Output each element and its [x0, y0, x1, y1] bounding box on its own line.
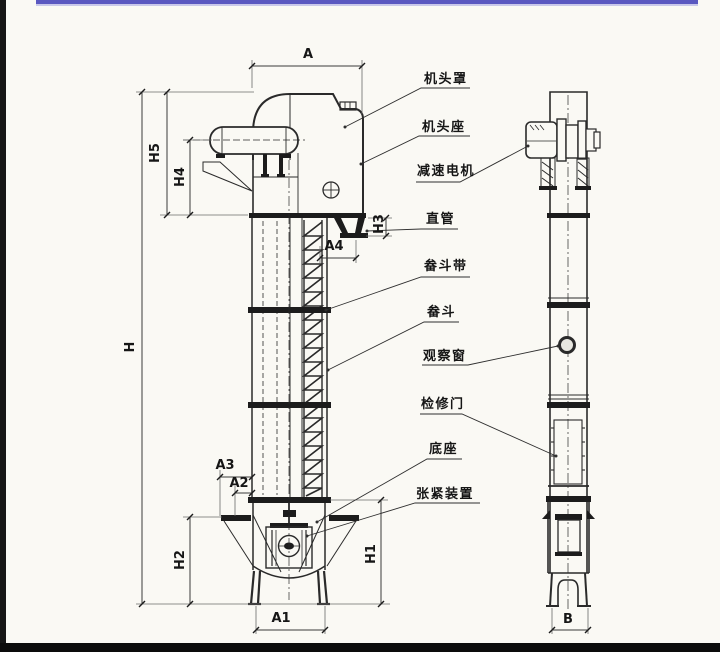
part-label-base: 底座 — [429, 443, 458, 457]
side-legs — [546, 573, 591, 606]
bottom-border-bar — [0, 643, 720, 652]
dim-label-A1: A1 — [269, 612, 293, 626]
boot-section — [221, 503, 359, 604]
dim-label-A: A — [296, 48, 320, 62]
bucket-belt-zigzag — [304, 220, 322, 497]
motor-mount-brackets — [539, 158, 591, 190]
bolt-symbol — [323, 182, 339, 198]
head-bottom-flange — [249, 213, 366, 218]
dim-label-B: B — [556, 613, 580, 627]
part-label-inspection-door: 检修门 — [421, 398, 465, 412]
right-bracket — [329, 515, 359, 521]
left-bracket — [221, 515, 251, 521]
side-view — [526, 92, 600, 612]
part-label-bucket-belt: 畚斗带 — [424, 260, 468, 274]
dim-label-A3: A3 — [213, 459, 237, 473]
dim-label-H1: H1 — [365, 542, 379, 566]
part-label-tensioning-device: 张紧装置 — [416, 488, 474, 502]
dim-label-H5: H5 — [149, 141, 163, 165]
part-label-gear-motor: 减速电机 — [417, 165, 475, 179]
part-label-observation-window: 观察窗 — [423, 350, 467, 364]
dim-label-H3: H3 — [373, 212, 387, 236]
observation-window-circle — [560, 338, 575, 353]
dim-label-H4: H4 — [174, 165, 188, 189]
part-label-bucket: 畚斗 — [427, 306, 456, 320]
part-label-head-seat: 机头座 — [422, 121, 466, 135]
dim-label-A2: A2 — [227, 477, 251, 491]
dim-label-H: H — [124, 335, 138, 359]
part-label-straight-pipe: 直管 — [426, 213, 455, 227]
front-view — [183, 94, 368, 604]
dim-label-A4: A4 — [322, 240, 346, 254]
casing-column — [248, 218, 331, 503]
gusset-bracket — [203, 162, 252, 191]
elevator-drawing — [0, 0, 720, 652]
discharge-chute — [334, 218, 368, 238]
screenshot-root: 机头罩 机头座 减速电机 直管 畚斗带 畚斗 观察窗 检修门 底座 张紧装置 A… — [0, 0, 720, 652]
front-motor-capsule — [183, 127, 305, 191]
part-label-head-cover: 机头罩 — [424, 73, 468, 87]
dim-label-H2: H2 — [174, 548, 188, 572]
side-gear-motor — [526, 119, 600, 190]
